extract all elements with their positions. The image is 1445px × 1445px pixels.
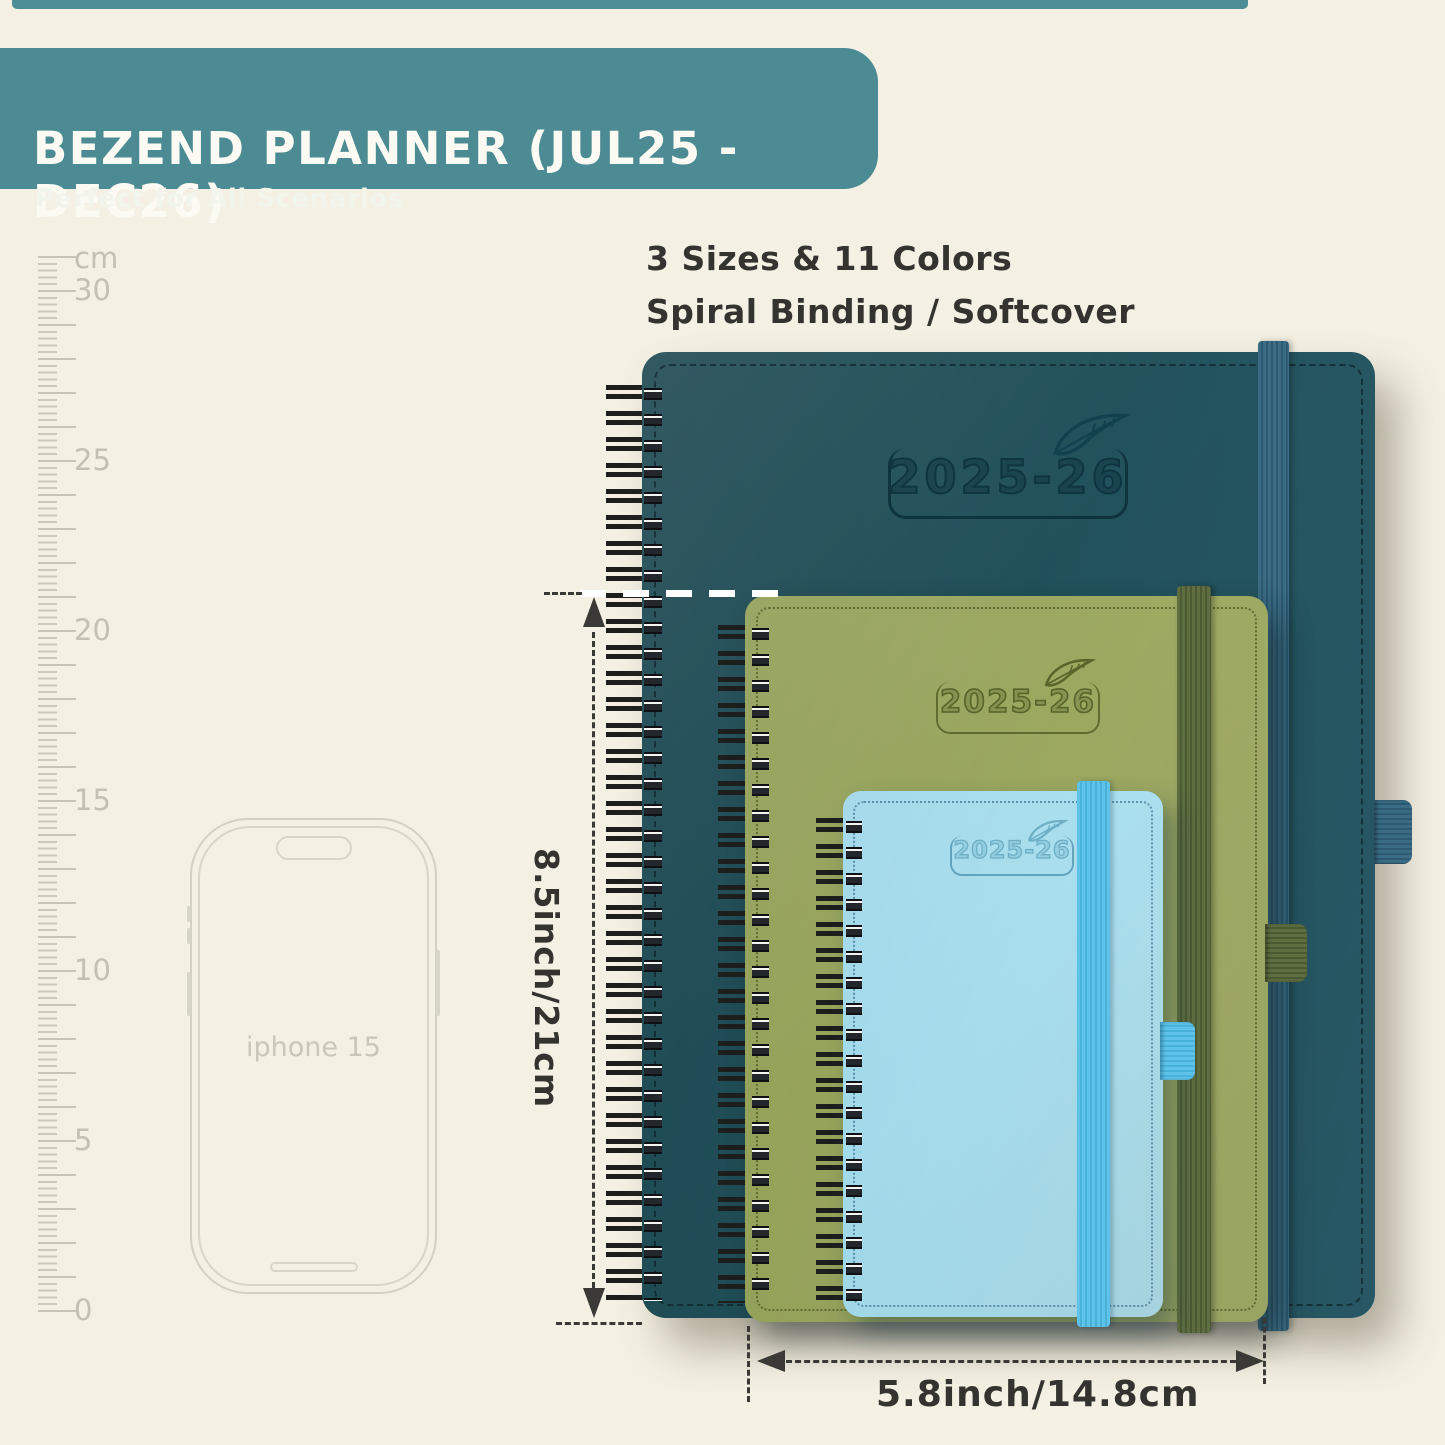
ruler-unit-label: cm: [74, 241, 118, 275]
phone-side-button: [436, 950, 440, 1016]
binding-clips: [846, 818, 862, 1302]
ruler-label-5: 5: [74, 1123, 92, 1157]
pen-loop-large: [1374, 800, 1412, 864]
banner: BEZEND PLANNER (JUL25 - DEC26) Perfect f…: [0, 48, 878, 189]
ruler-label-15: 15: [74, 783, 111, 817]
year-emboss-frame: 2025-26: [888, 448, 1128, 519]
ruler-label-0: 0: [74, 1293, 92, 1327]
phone-outline: iphone 15: [190, 818, 437, 1294]
features-note: 3 Sizes & 11 Colors Spiral Binding / Sof…: [646, 232, 1135, 338]
ruler-label-30: 30: [74, 273, 111, 307]
phone-dynamic-island: [276, 836, 352, 860]
ruler-tick-marks: [38, 256, 76, 1314]
width-extent-line-left: [747, 1326, 750, 1402]
year-emboss: 2025-26: [952, 831, 1072, 869]
phone-speaker-slot: [270, 1262, 358, 1272]
ruler-label-10: 10: [74, 953, 111, 987]
width-dimension-line: [786, 1360, 1236, 1363]
year-emboss: 2025-26: [938, 677, 1098, 727]
height-extent-line-bottom: [556, 1322, 642, 1325]
elastic-band-small: [1077, 781, 1110, 1327]
features-note-line2: Spiral Binding / Softcover: [646, 285, 1135, 338]
features-note-line1: 3 Sizes & 11 Colors: [646, 232, 1135, 285]
banner-subtitle: Perfect for All Scenarios: [35, 184, 404, 214]
width-arrow-right-icon: [1236, 1350, 1264, 1372]
height-dimension-line: [592, 632, 595, 1288]
elastic-band-medium: [1177, 586, 1211, 1333]
phone-side-button: [187, 906, 191, 922]
year-emboss: 2025-26: [891, 443, 1125, 511]
phone-side-button: [187, 972, 191, 1016]
ruler-label-20: 20: [74, 613, 111, 647]
binding-clips: [644, 385, 662, 1301]
binding-clips: [752, 625, 769, 1303]
year-emboss-frame: 2025-26: [936, 682, 1100, 734]
product-infographic: BEZEND PLANNER (JUL25 - DEC26) Perfect f…: [0, 0, 1445, 1445]
phone-side-button: [187, 928, 191, 944]
top-accent-strip: [12, 0, 1248, 9]
width-dimension-label: 5.8inch/14.8cm: [876, 1374, 1200, 1415]
pen-loop-small: [1160, 1022, 1195, 1080]
height-extent-line-top: [544, 592, 582, 595]
width-arrow-left-icon: [757, 1350, 785, 1372]
phone-label: iphone 15: [192, 1032, 435, 1063]
height-arrow-down-icon: [583, 1288, 605, 1318]
year-emboss-frame: 2025-26: [950, 836, 1074, 876]
height-arrow-up-icon: [583, 597, 605, 627]
height-extent-line-white: [580, 590, 780, 597]
height-dimension-label: 8.5inch/21cm: [527, 848, 566, 1108]
ruler-label-25: 25: [74, 443, 111, 477]
pen-loop-medium: [1265, 924, 1307, 982]
